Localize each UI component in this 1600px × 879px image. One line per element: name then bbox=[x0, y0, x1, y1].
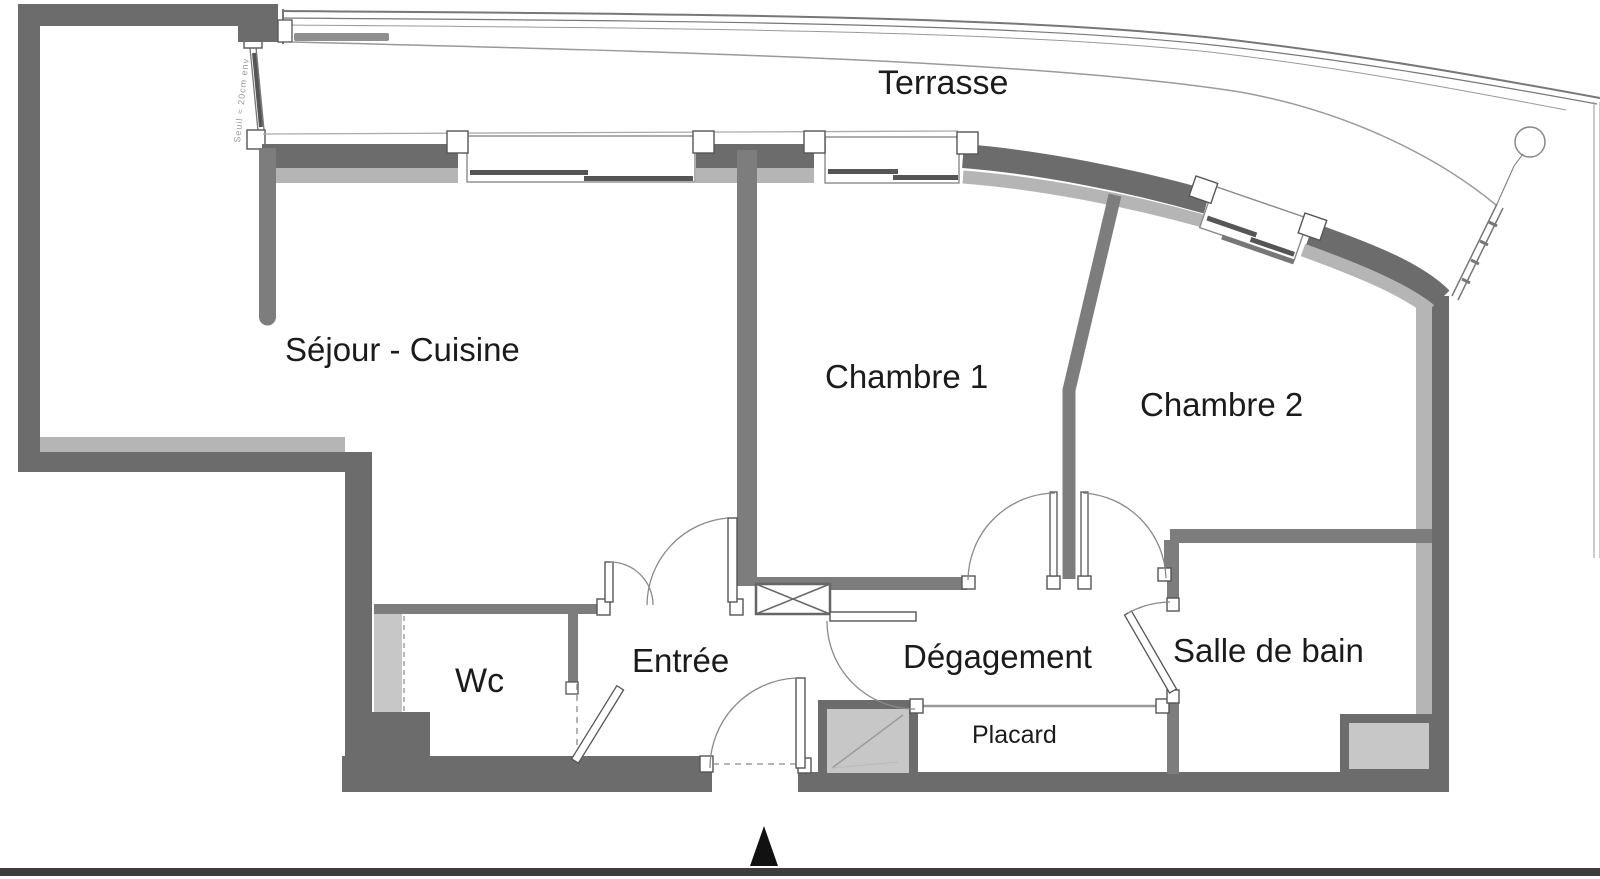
door-leaf bbox=[605, 562, 613, 602]
window-jamb bbox=[278, 20, 292, 42]
wall-light-band bbox=[40, 437, 345, 452]
duct-degagement bbox=[818, 700, 918, 782]
window-jamb bbox=[693, 131, 714, 153]
wall-chambre1-chambre2 bbox=[1069, 195, 1115, 579]
window-jamb bbox=[804, 131, 825, 153]
door-chambre2 bbox=[1078, 492, 1171, 589]
room-label-entree: Entrée bbox=[632, 642, 729, 680]
wall-sejour-chambre1 bbox=[737, 150, 757, 586]
room-label-terrasse: Terrasse bbox=[878, 64, 1008, 103]
door-entrance bbox=[700, 678, 811, 773]
floor-plan: Terrasse Séjour - Cuisine Chambre 1 Cham… bbox=[0, 0, 1600, 879]
entry-arrow-icon bbox=[750, 826, 778, 866]
door-swing-arc bbox=[647, 518, 728, 605]
door-jamb bbox=[1158, 568, 1171, 581]
terrace-planter bbox=[294, 33, 389, 41]
door-leaf bbox=[1125, 611, 1177, 693]
wall-wc-top bbox=[374, 604, 598, 614]
door-swing-arc bbox=[1128, 602, 1170, 613]
door-leaf bbox=[1050, 492, 1057, 576]
sejour-window bbox=[447, 131, 714, 182]
door-jamb bbox=[1078, 576, 1091, 589]
wall-sdb-top bbox=[1170, 529, 1432, 543]
chambre1-window bbox=[804, 131, 978, 183]
door-leaf bbox=[728, 518, 737, 602]
door-salle-de-bain bbox=[1125, 598, 1179, 703]
door-jamb bbox=[1167, 598, 1179, 611]
door-jamb bbox=[910, 699, 923, 713]
facade-terrace-line bbox=[263, 131, 958, 134]
room-label-placard: Placard bbox=[972, 721, 1057, 750]
door-sejour bbox=[597, 518, 743, 615]
duct-salle-de-bain bbox=[1340, 714, 1435, 776]
door-chambre1 bbox=[962, 492, 1060, 589]
window-jamb bbox=[957, 132, 978, 154]
door-leaf bbox=[830, 612, 916, 621]
terrace-corner-column bbox=[1515, 127, 1545, 157]
door-leaf bbox=[572, 686, 624, 763]
room-label-chambre-2: Chambre 2 bbox=[1140, 386, 1303, 424]
room-label-degagement: Dégagement bbox=[903, 638, 1092, 676]
door-wc bbox=[566, 682, 624, 763]
room-label-chambre-1: Chambre 1 bbox=[825, 358, 988, 396]
duct-wc bbox=[374, 614, 404, 712]
door-swing-arc bbox=[827, 621, 915, 709]
door-swing-arc bbox=[710, 678, 796, 768]
door-swing-arc bbox=[968, 493, 1055, 580]
door-leaf bbox=[796, 678, 805, 768]
door-jamb bbox=[566, 682, 578, 694]
room-label-wc: Wc bbox=[455, 662, 504, 701]
room-label-salle-de-bain: Salle de bain bbox=[1173, 632, 1364, 670]
door-swing-arc bbox=[1083, 493, 1166, 578]
door-leaf bbox=[1081, 492, 1088, 576]
window-jamb bbox=[447, 131, 468, 153]
structural-column bbox=[756, 584, 830, 614]
page-edge-line bbox=[0, 868, 1600, 876]
wall-kitchen-stub bbox=[259, 148, 276, 316]
door-jamb bbox=[1047, 576, 1060, 589]
terrace-end-partition-right bbox=[1452, 127, 1545, 300]
wall-wc-right bbox=[568, 604, 578, 682]
door-swing-arc bbox=[610, 562, 653, 605]
wall-light-band bbox=[1416, 300, 1432, 715]
room-label-sejour-cuisine: Séjour - Cuisine bbox=[285, 331, 520, 369]
placard-front bbox=[910, 699, 1169, 713]
